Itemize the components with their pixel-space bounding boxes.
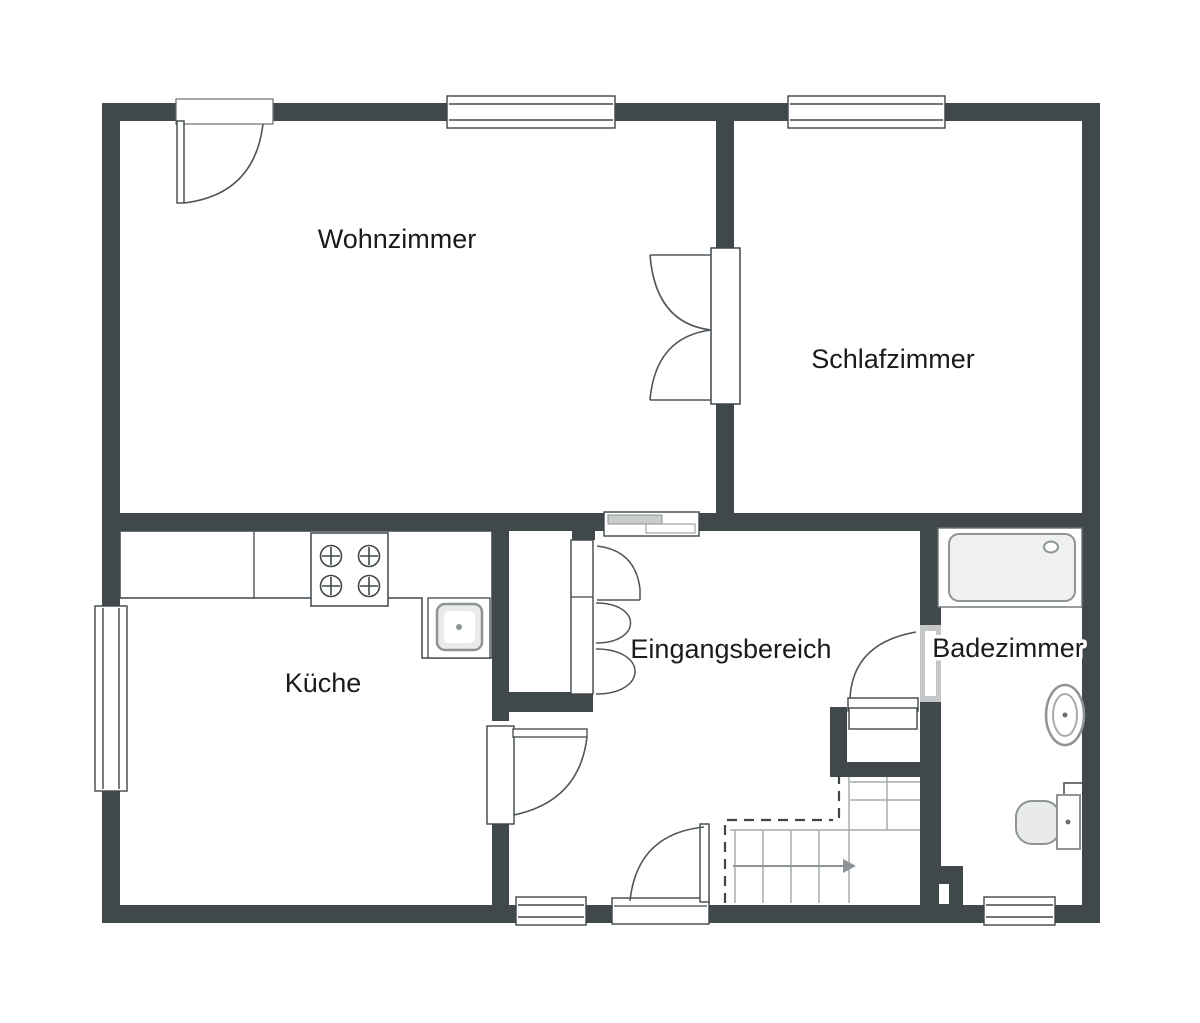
- label-schlafzimmer: Schlafzimmer: [811, 344, 975, 374]
- wall-niche-bath: [1070, 881, 1080, 904]
- floorplan-svg: Wohnzimmer Schlafzimmer Küche Eingangsbe…: [0, 0, 1200, 1023]
- burner: [359, 546, 380, 567]
- toilet: [1016, 783, 1082, 849]
- door-entrance: [612, 824, 709, 924]
- wall-right: [1082, 103, 1100, 923]
- door-swing-arc: [514, 737, 587, 815]
- bathtub-drain: [1044, 542, 1058, 553]
- kitchen-sink: [428, 598, 490, 658]
- double-door-wohn-schlaf: [650, 248, 740, 404]
- wall-left: [102, 103, 120, 923]
- room-labels: Wohnzimmer Schlafzimmer Küche Eingangsbe…: [285, 224, 1084, 698]
- door-leaf: [700, 824, 709, 902]
- wall-closet-top-stub: [572, 531, 595, 540]
- window-top-right: [788, 96, 945, 128]
- understair-closet-door: [849, 708, 917, 729]
- stove: [311, 533, 388, 606]
- walls: [102, 103, 1100, 923]
- window-top-middle: [447, 96, 615, 128]
- door-bathroom: [848, 625, 941, 711]
- wall-understair-closet-bottom: [830, 762, 933, 777]
- sliding-door: [604, 512, 699, 536]
- toilet-bowl: [1016, 801, 1060, 844]
- wall-divider-wohn-schlaf-bottom: [716, 404, 734, 514]
- washbasin: [1046, 685, 1084, 745]
- burner: [359, 576, 380, 597]
- wall-closet-bottom-stub: [492, 692, 593, 712]
- door-swing-arc: [630, 827, 704, 901]
- stair-direction-arrow: [733, 859, 856, 873]
- closet-door-panel: [571, 540, 593, 694]
- label-kueche: Küche: [285, 668, 362, 698]
- door-leaf: [177, 121, 184, 203]
- door-swing-arc: [850, 632, 916, 698]
- window-bottom-left: [516, 897, 586, 925]
- window-bottom-right: [984, 897, 1055, 925]
- door-kitchen: [487, 726, 587, 824]
- burner: [321, 576, 342, 597]
- window-left: [95, 606, 127, 791]
- wall-middle-left: [120, 513, 608, 531]
- label-badezimmer: Badezimmer: [932, 633, 1084, 663]
- entry-closet: [571, 540, 640, 694]
- bathtub: [938, 528, 1082, 607]
- stair-dashed-boundary: [725, 772, 839, 903]
- door-swing-arc: [184, 124, 263, 203]
- wall-niche-stairs: [939, 884, 949, 904]
- wall-divider-wohn-schlaf-top: [716, 121, 734, 248]
- staircase: [725, 772, 920, 903]
- burner: [321, 546, 342, 567]
- door-wohnzimmer-top: [176, 99, 273, 203]
- label-eingangsbereich: Eingangsbereich: [630, 634, 831, 664]
- label-wohnzimmer: Wohnzimmer: [318, 224, 477, 254]
- wall-kitchen-lower: [492, 824, 509, 905]
- door-leaf: [513, 729, 587, 737]
- floorplan-canvas: Wohnzimmer Schlafzimmer Küche Eingangsbe…: [0, 0, 1200, 1023]
